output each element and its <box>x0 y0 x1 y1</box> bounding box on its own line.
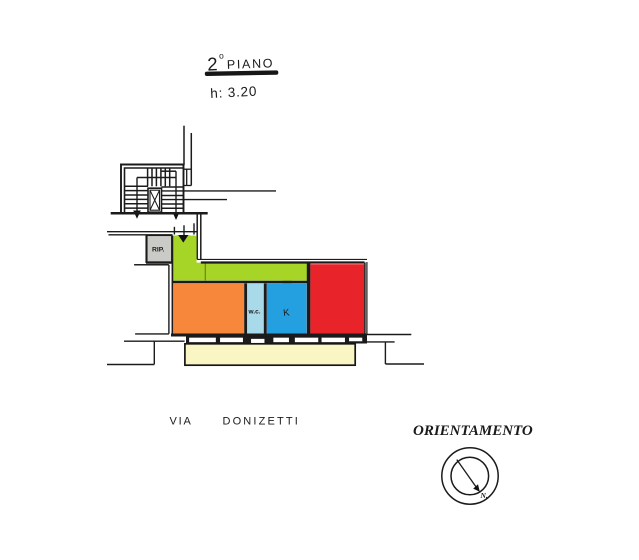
svg-text:N.: N. <box>480 491 488 500</box>
svg-text:2: 2 <box>207 53 218 74</box>
svg-text:VIA: VIA <box>170 416 193 428</box>
svg-text:o: o <box>219 51 224 61</box>
svg-text:w.c.: w.c. <box>248 309 261 316</box>
svg-text:PIANO: PIANO <box>227 56 275 72</box>
svg-text:DONIZETTI: DONIZETTI <box>223 416 300 428</box>
svg-text:ORIENTAMENTO: ORIENTAMENTO <box>413 423 533 439</box>
svg-text:h: 3.20: h: 3.20 <box>210 84 258 101</box>
svg-text:RIP.: RIP. <box>152 247 164 254</box>
